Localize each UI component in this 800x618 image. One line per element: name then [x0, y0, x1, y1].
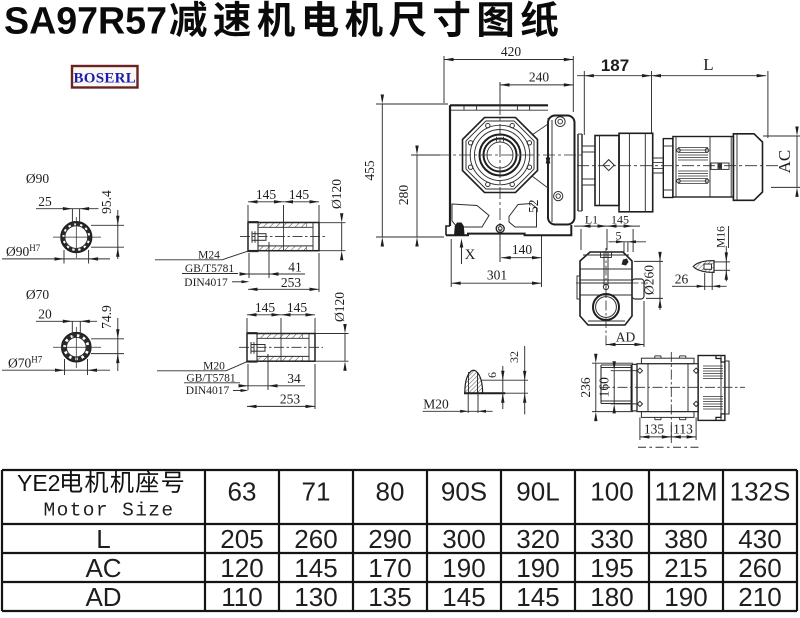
svg-text:BOSERL: BOSERL — [73, 71, 136, 87]
svg-text:71: 71 — [302, 477, 331, 507]
svg-text:74.9: 74.9 — [99, 305, 114, 329]
svg-text:180: 180 — [590, 582, 633, 612]
svg-text:190: 190 — [664, 582, 707, 612]
svg-text:130: 130 — [294, 582, 337, 612]
svg-text:32: 32 — [507, 351, 521, 363]
svg-text:135: 135 — [368, 582, 411, 612]
svg-text:AD: AD — [85, 582, 121, 612]
svg-text:145: 145 — [289, 187, 310, 202]
svg-text:280: 280 — [396, 185, 411, 206]
svg-text:6: 6 — [485, 372, 499, 378]
svg-text:20: 20 — [38, 307, 52, 322]
svg-text:5: 5 — [616, 229, 622, 243]
svg-text:455: 455 — [362, 160, 377, 181]
svg-text:M16: M16 — [716, 226, 728, 248]
svg-text:145: 145 — [294, 553, 337, 583]
svg-text:300: 300 — [442, 524, 485, 554]
svg-text:190: 190 — [516, 553, 559, 583]
svg-text:Ø260: Ø260 — [642, 265, 657, 295]
svg-text:52: 52 — [526, 200, 541, 214]
svg-text:330: 330 — [590, 524, 633, 554]
svg-text:Motor Size: Motor Size — [43, 500, 174, 522]
svg-text:320: 320 — [516, 524, 559, 554]
svg-text:187: 187 — [601, 56, 629, 75]
svg-text:X: X — [465, 247, 476, 263]
svg-text:AC: AC — [775, 150, 794, 174]
svg-text:Ø120: Ø120 — [332, 292, 347, 322]
svg-text:145: 145 — [255, 300, 276, 315]
svg-text:205: 205 — [220, 524, 263, 554]
svg-text:Ø90: Ø90 — [26, 171, 49, 186]
svg-text:95.4: 95.4 — [99, 190, 114, 214]
svg-text:26: 26 — [675, 272, 689, 287]
svg-text:195: 195 — [590, 553, 633, 583]
svg-text:420: 420 — [501, 44, 522, 59]
svg-text:380: 380 — [664, 524, 707, 554]
svg-text:90L: 90L — [516, 477, 559, 507]
svg-text:260: 260 — [738, 553, 781, 583]
svg-text:145: 145 — [442, 582, 485, 612]
svg-text:253: 253 — [281, 275, 302, 290]
svg-text:DIN4017: DIN4017 — [186, 385, 230, 397]
svg-text:145: 145 — [287, 300, 308, 315]
svg-text:41: 41 — [288, 260, 302, 275]
svg-text:100: 100 — [590, 477, 633, 507]
svg-text:290: 290 — [368, 524, 411, 554]
svg-text:AD: AD — [616, 330, 636, 345]
svg-text:90S: 90S — [441, 477, 487, 507]
svg-text:80: 80 — [376, 477, 405, 507]
svg-text:AC: AC — [85, 553, 121, 583]
svg-text:SA97R57: SA97R57 — [4, 1, 167, 43]
svg-text:190: 190 — [442, 553, 485, 583]
svg-text:112M: 112M — [654, 477, 717, 507]
svg-text:240: 240 — [529, 70, 550, 85]
svg-text:160: 160 — [597, 377, 612, 398]
svg-text:430: 430 — [738, 524, 781, 554]
svg-text:L: L — [96, 524, 110, 554]
svg-text:260: 260 — [294, 524, 337, 554]
svg-text:34: 34 — [287, 371, 301, 386]
svg-text:145: 145 — [256, 187, 277, 202]
svg-text:L1: L1 — [585, 213, 598, 227]
svg-text:145: 145 — [611, 213, 629, 227]
svg-text:Ø120: Ø120 — [329, 179, 344, 209]
svg-text:L: L — [703, 55, 713, 74]
svg-text:YE2: YE2 — [17, 470, 60, 496]
svg-text:215: 215 — [664, 553, 707, 583]
svg-text:M20: M20 — [423, 397, 449, 412]
svg-text:132S: 132S — [730, 477, 791, 507]
svg-text:210: 210 — [738, 582, 781, 612]
svg-text:110: 110 — [221, 582, 262, 612]
svg-text:253: 253 — [280, 392, 301, 407]
svg-text:170: 170 — [368, 553, 411, 583]
svg-text:113: 113 — [673, 422, 693, 437]
svg-text:145: 145 — [516, 582, 559, 612]
svg-text:140: 140 — [512, 242, 533, 257]
svg-text:135: 135 — [644, 422, 665, 437]
svg-text:236: 236 — [578, 377, 593, 398]
svg-text:63: 63 — [228, 477, 257, 507]
svg-text:120: 120 — [220, 553, 263, 583]
svg-text:25: 25 — [38, 194, 52, 209]
svg-text:DIN4017: DIN4017 — [184, 277, 228, 289]
svg-text:Ø70: Ø70 — [26, 287, 49, 302]
svg-text:301: 301 — [487, 268, 507, 283]
